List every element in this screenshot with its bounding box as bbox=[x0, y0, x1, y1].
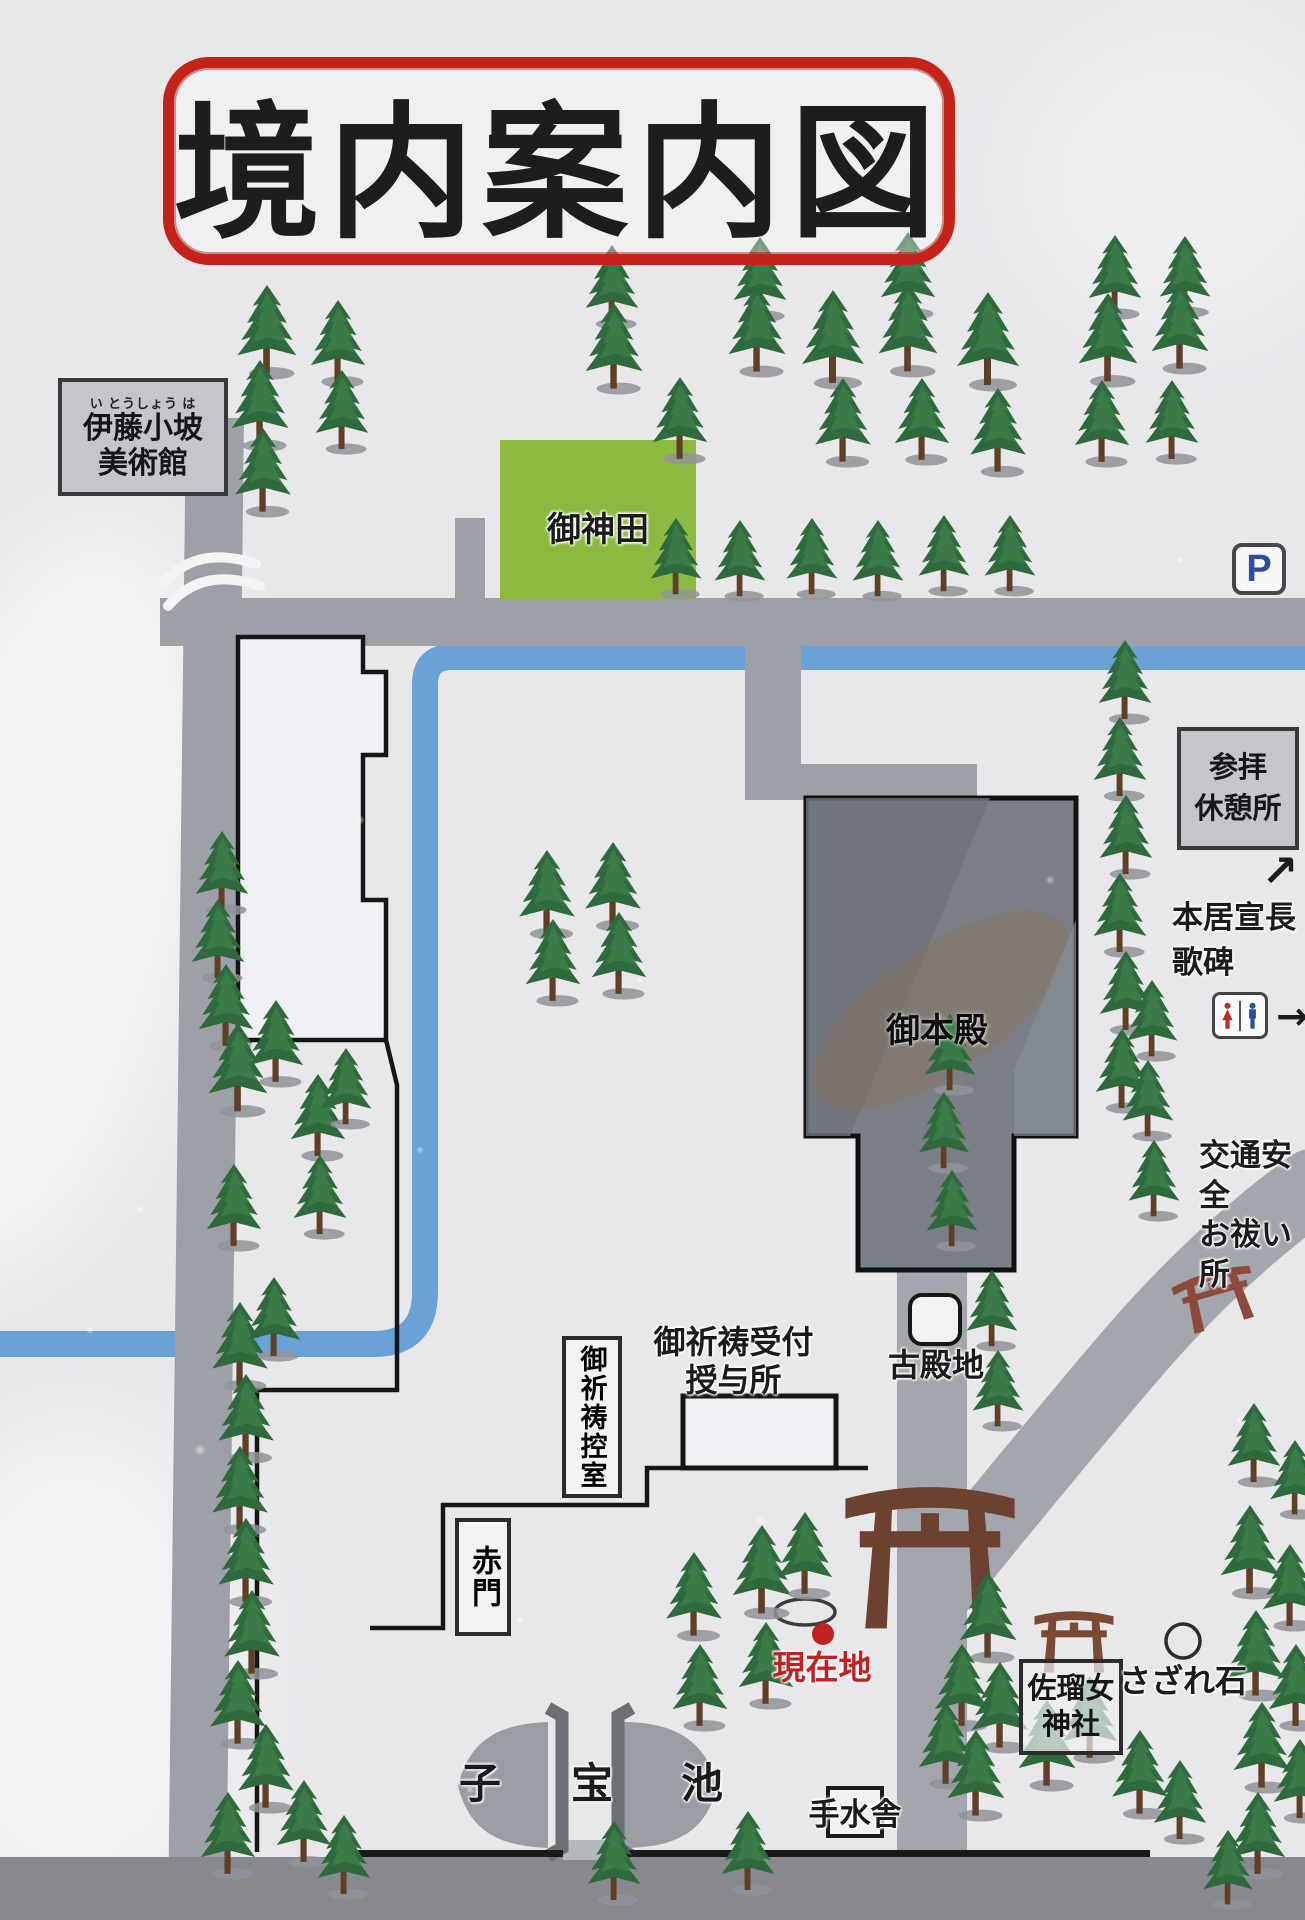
current-location-label: 現在地 bbox=[766, 1650, 878, 1690]
reception-label: 御祈祷受付 授与所 bbox=[646, 1324, 821, 1400]
female-icon bbox=[1219, 1000, 1236, 1032]
path-band-honden bbox=[745, 764, 977, 800]
akamon-box: 赤門 bbox=[455, 1518, 511, 1636]
tree-icon bbox=[715, 520, 766, 602]
tree-icon bbox=[519, 850, 575, 940]
tree-icon bbox=[1075, 380, 1130, 468]
tree-icon bbox=[970, 388, 1026, 478]
pond-label-char3: 池 bbox=[676, 1760, 728, 1810]
tree-icon bbox=[895, 378, 950, 466]
sazare-stone-icon bbox=[1166, 1624, 1200, 1658]
page-title: 境内案内図 bbox=[174, 56, 944, 267]
honden-label: 御本殿 bbox=[857, 1012, 1017, 1053]
waiting-room-box: 御祈祷控室 bbox=[562, 1336, 622, 1498]
tree-icon bbox=[1129, 1140, 1180, 1222]
east-arrow-icon: → bbox=[1272, 994, 1305, 1040]
tree-icon bbox=[728, 286, 785, 378]
monument-line1: 本居宣長 bbox=[1172, 900, 1296, 935]
map-canvas bbox=[0, 0, 1305, 1920]
kodenchi-marker bbox=[910, 1295, 960, 1344]
purification-line1: 交通安全 bbox=[1199, 1138, 1292, 1213]
sarume-shrine-box: 佐瑠女 神社 bbox=[1019, 1659, 1123, 1755]
tree-icon bbox=[957, 292, 1019, 392]
rest-area-line2: 休憩所 bbox=[1194, 789, 1281, 830]
reception-line1: 御祈祷受付 bbox=[653, 1324, 813, 1360]
male-icon bbox=[1244, 1000, 1261, 1032]
museum-name-line1: 伊藤小坡 bbox=[83, 412, 203, 447]
tree-icon bbox=[919, 515, 970, 597]
sarume-line1: 佐瑠女 bbox=[1027, 1671, 1114, 1707]
pond-label-char1: 子 bbox=[454, 1760, 506, 1810]
museum-name-line2: 美術館 bbox=[98, 447, 188, 482]
rest-area-box: 参拝 休憩所 bbox=[1177, 727, 1299, 850]
tree-icon bbox=[1228, 1403, 1281, 1488]
tree-icon bbox=[778, 1512, 833, 1600]
tree-icon bbox=[666, 1552, 722, 1642]
tree-icon bbox=[238, 285, 297, 380]
path-stub-honden bbox=[745, 640, 801, 770]
akamon-label: 赤門 bbox=[461, 1545, 505, 1609]
tree-icon bbox=[879, 283, 938, 378]
road-bottom bbox=[0, 1857, 1305, 1920]
sazare-stone-label: さざれ石 bbox=[1118, 1662, 1248, 1700]
title-banner: 境内案内図 bbox=[163, 57, 955, 265]
tree-icon bbox=[1100, 795, 1153, 880]
tree-icon bbox=[1154, 1760, 1207, 1845]
tree-icon bbox=[815, 378, 871, 468]
restroom-sign bbox=[1212, 992, 1268, 1039]
tree-icon bbox=[585, 842, 641, 932]
tree-icon bbox=[277, 1780, 332, 1868]
restroom-divider bbox=[1239, 1001, 1241, 1031]
tree-icon bbox=[967, 1270, 1018, 1352]
tree-icon bbox=[585, 303, 642, 395]
monument-line2: 歌碑 bbox=[1172, 945, 1234, 980]
tree-icon bbox=[294, 1155, 347, 1240]
kodenchi-label: 古殿地 bbox=[878, 1346, 994, 1384]
museum-furigana: い とうしょう は bbox=[90, 393, 197, 412]
building-office bbox=[238, 637, 386, 1040]
wall-west bbox=[257, 1040, 397, 1852]
museum-label-box: い とうしょう は 伊藤小坡 美術館 bbox=[58, 378, 228, 496]
building-reception bbox=[683, 1396, 836, 1468]
tree-icon bbox=[1221, 1505, 1280, 1600]
temizu-label: 手水舎 bbox=[790, 1796, 920, 1833]
tree-icon bbox=[311, 300, 366, 388]
tree-icon bbox=[802, 290, 864, 390]
tree-icon bbox=[787, 518, 838, 600]
waiting-room-label: 御祈祷控室 bbox=[573, 1345, 612, 1490]
rest-area-line1: 参拝 bbox=[1209, 748, 1267, 789]
northeast-arrow-icon: ↗ bbox=[1254, 846, 1305, 899]
tree-icon bbox=[1079, 293, 1138, 388]
purification-line2: お祓い所 bbox=[1199, 1217, 1292, 1292]
tree-icon bbox=[238, 1724, 294, 1814]
parking-sign: P bbox=[1232, 543, 1286, 595]
shrine-map-sign: 境内案内図 い とうしょう は 伊藤小坡 美術館 御神田 P 参拝 休憩所 ↗ … bbox=[0, 0, 1305, 1920]
tree-icon bbox=[853, 520, 904, 602]
purification-label: 交通安全 お祓い所 bbox=[1199, 1136, 1305, 1295]
tree-icon bbox=[1094, 873, 1147, 958]
sacred-field-label: 御神田 bbox=[500, 511, 696, 552]
tree-icon bbox=[673, 1644, 728, 1732]
path-stub-field bbox=[455, 518, 485, 602]
reception-line2: 授与所 bbox=[685, 1362, 781, 1398]
tree-icon bbox=[1151, 283, 1208, 375]
tree-icon bbox=[1146, 380, 1199, 465]
parking-icon: P bbox=[1246, 548, 1271, 591]
trees-layer bbox=[192, 232, 1305, 1910]
tree-icon bbox=[985, 515, 1036, 597]
current-location-dot bbox=[812, 1623, 834, 1645]
monument-label: 本居宣長 歌碑 bbox=[1172, 896, 1305, 986]
tree-icon bbox=[1094, 717, 1147, 802]
sarume-line2: 神社 bbox=[1042, 1707, 1100, 1743]
tree-icon bbox=[1233, 1702, 1290, 1794]
pond-label-char2: 宝 bbox=[566, 1760, 618, 1810]
wall-south bbox=[370, 1468, 683, 1628]
